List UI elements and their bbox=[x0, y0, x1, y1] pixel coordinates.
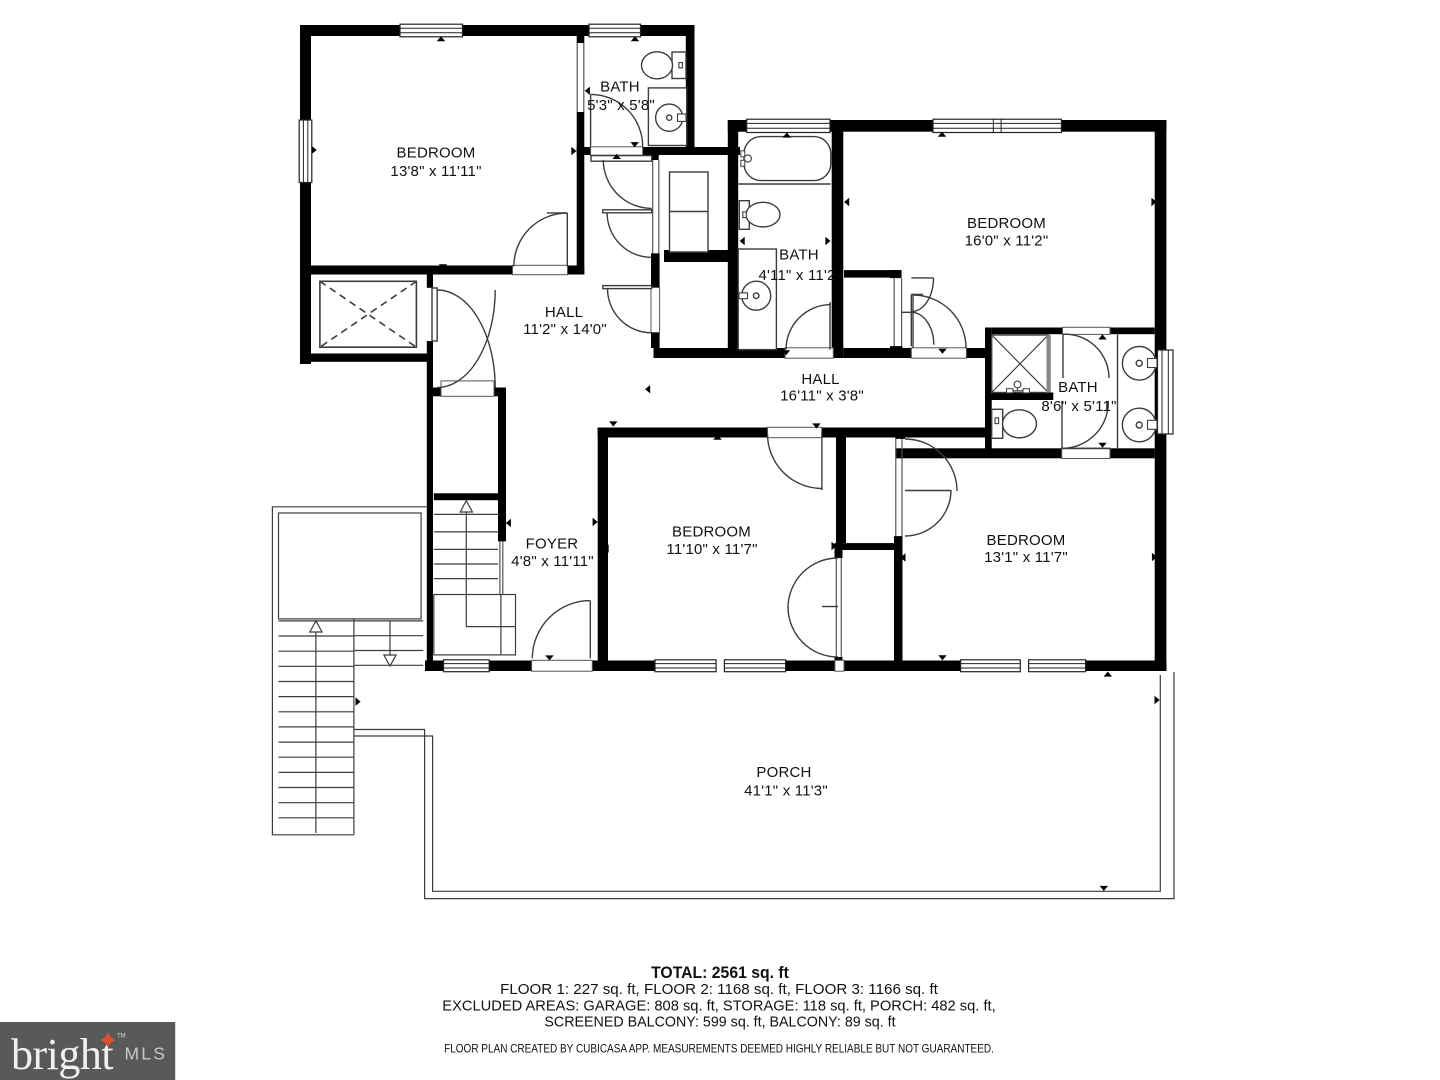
svg-text:13'1" x 11'7": 13'1" x 11'7" bbox=[984, 549, 1068, 566]
svg-text:PORCH: PORCH bbox=[756, 764, 811, 781]
svg-text:BATH: BATH bbox=[779, 247, 819, 264]
svg-text:11'10" x 11'7": 11'10" x 11'7" bbox=[666, 541, 757, 558]
svg-text:TOTAL: 2561 sq. ft: TOTAL: 2561 sq. ft bbox=[651, 964, 789, 982]
svg-text:BATH: BATH bbox=[1058, 379, 1098, 396]
svg-text:BEDROOM: BEDROOM bbox=[672, 524, 751, 541]
svg-text:16'11" x 3'8": 16'11" x 3'8" bbox=[780, 388, 864, 405]
svg-text:4'8" x 11'11": 4'8" x 11'11" bbox=[511, 553, 594, 570]
svg-text:FLOOR 1: 227 sq. ft, FLOOR 2:: FLOOR 1: 227 sq. ft, FLOOR 2: 1168 sq. f… bbox=[500, 981, 939, 998]
svg-text:MLS: MLS bbox=[125, 1044, 168, 1064]
svg-text:BEDROOM: BEDROOM bbox=[987, 532, 1066, 549]
svg-text:BATH: BATH bbox=[600, 79, 640, 96]
svg-text:EXCLUDED AREAS: GARAGE: 808 sq: EXCLUDED AREAS: GARAGE: 808 sq. ft, STOR… bbox=[442, 998, 995, 1015]
svg-text:BEDROOM: BEDROOM bbox=[967, 215, 1046, 232]
svg-text:HALL: HALL bbox=[801, 371, 839, 388]
svg-text:BEDROOM: BEDROOM bbox=[397, 145, 476, 162]
svg-text:13'8" x 11'11": 13'8" x 11'11" bbox=[390, 163, 481, 180]
svg-text:4'11" x 11'2: 4'11" x 11'2 bbox=[758, 267, 835, 284]
svg-text:TM: TM bbox=[117, 1034, 126, 1040]
svg-text:bright: bright bbox=[11, 1030, 113, 1079]
svg-text:5'3" x 5'8": 5'3" x 5'8" bbox=[587, 97, 655, 114]
svg-text:SCREENED BALCONY: 599 sq. ft,: SCREENED BALCONY: 599 sq. ft, BALCONY: 8… bbox=[544, 1014, 896, 1031]
svg-text:16'0" x 11'2": 16'0" x 11'2" bbox=[965, 233, 1049, 250]
svg-text:41'1" x 11'3": 41'1" x 11'3" bbox=[744, 783, 828, 800]
svg-text:FOYER: FOYER bbox=[526, 536, 579, 553]
svg-text:HALL: HALL bbox=[545, 304, 583, 321]
svg-text:8'6" x 5'11": 8'6" x 5'11" bbox=[1041, 398, 1116, 415]
svg-text:11'2" x 14'0": 11'2" x 14'0" bbox=[523, 321, 607, 338]
svg-text:FLOOR PLAN CREATED BY CUBICASA: FLOOR PLAN CREATED BY CUBICASA APP. MEAS… bbox=[444, 1042, 994, 1056]
